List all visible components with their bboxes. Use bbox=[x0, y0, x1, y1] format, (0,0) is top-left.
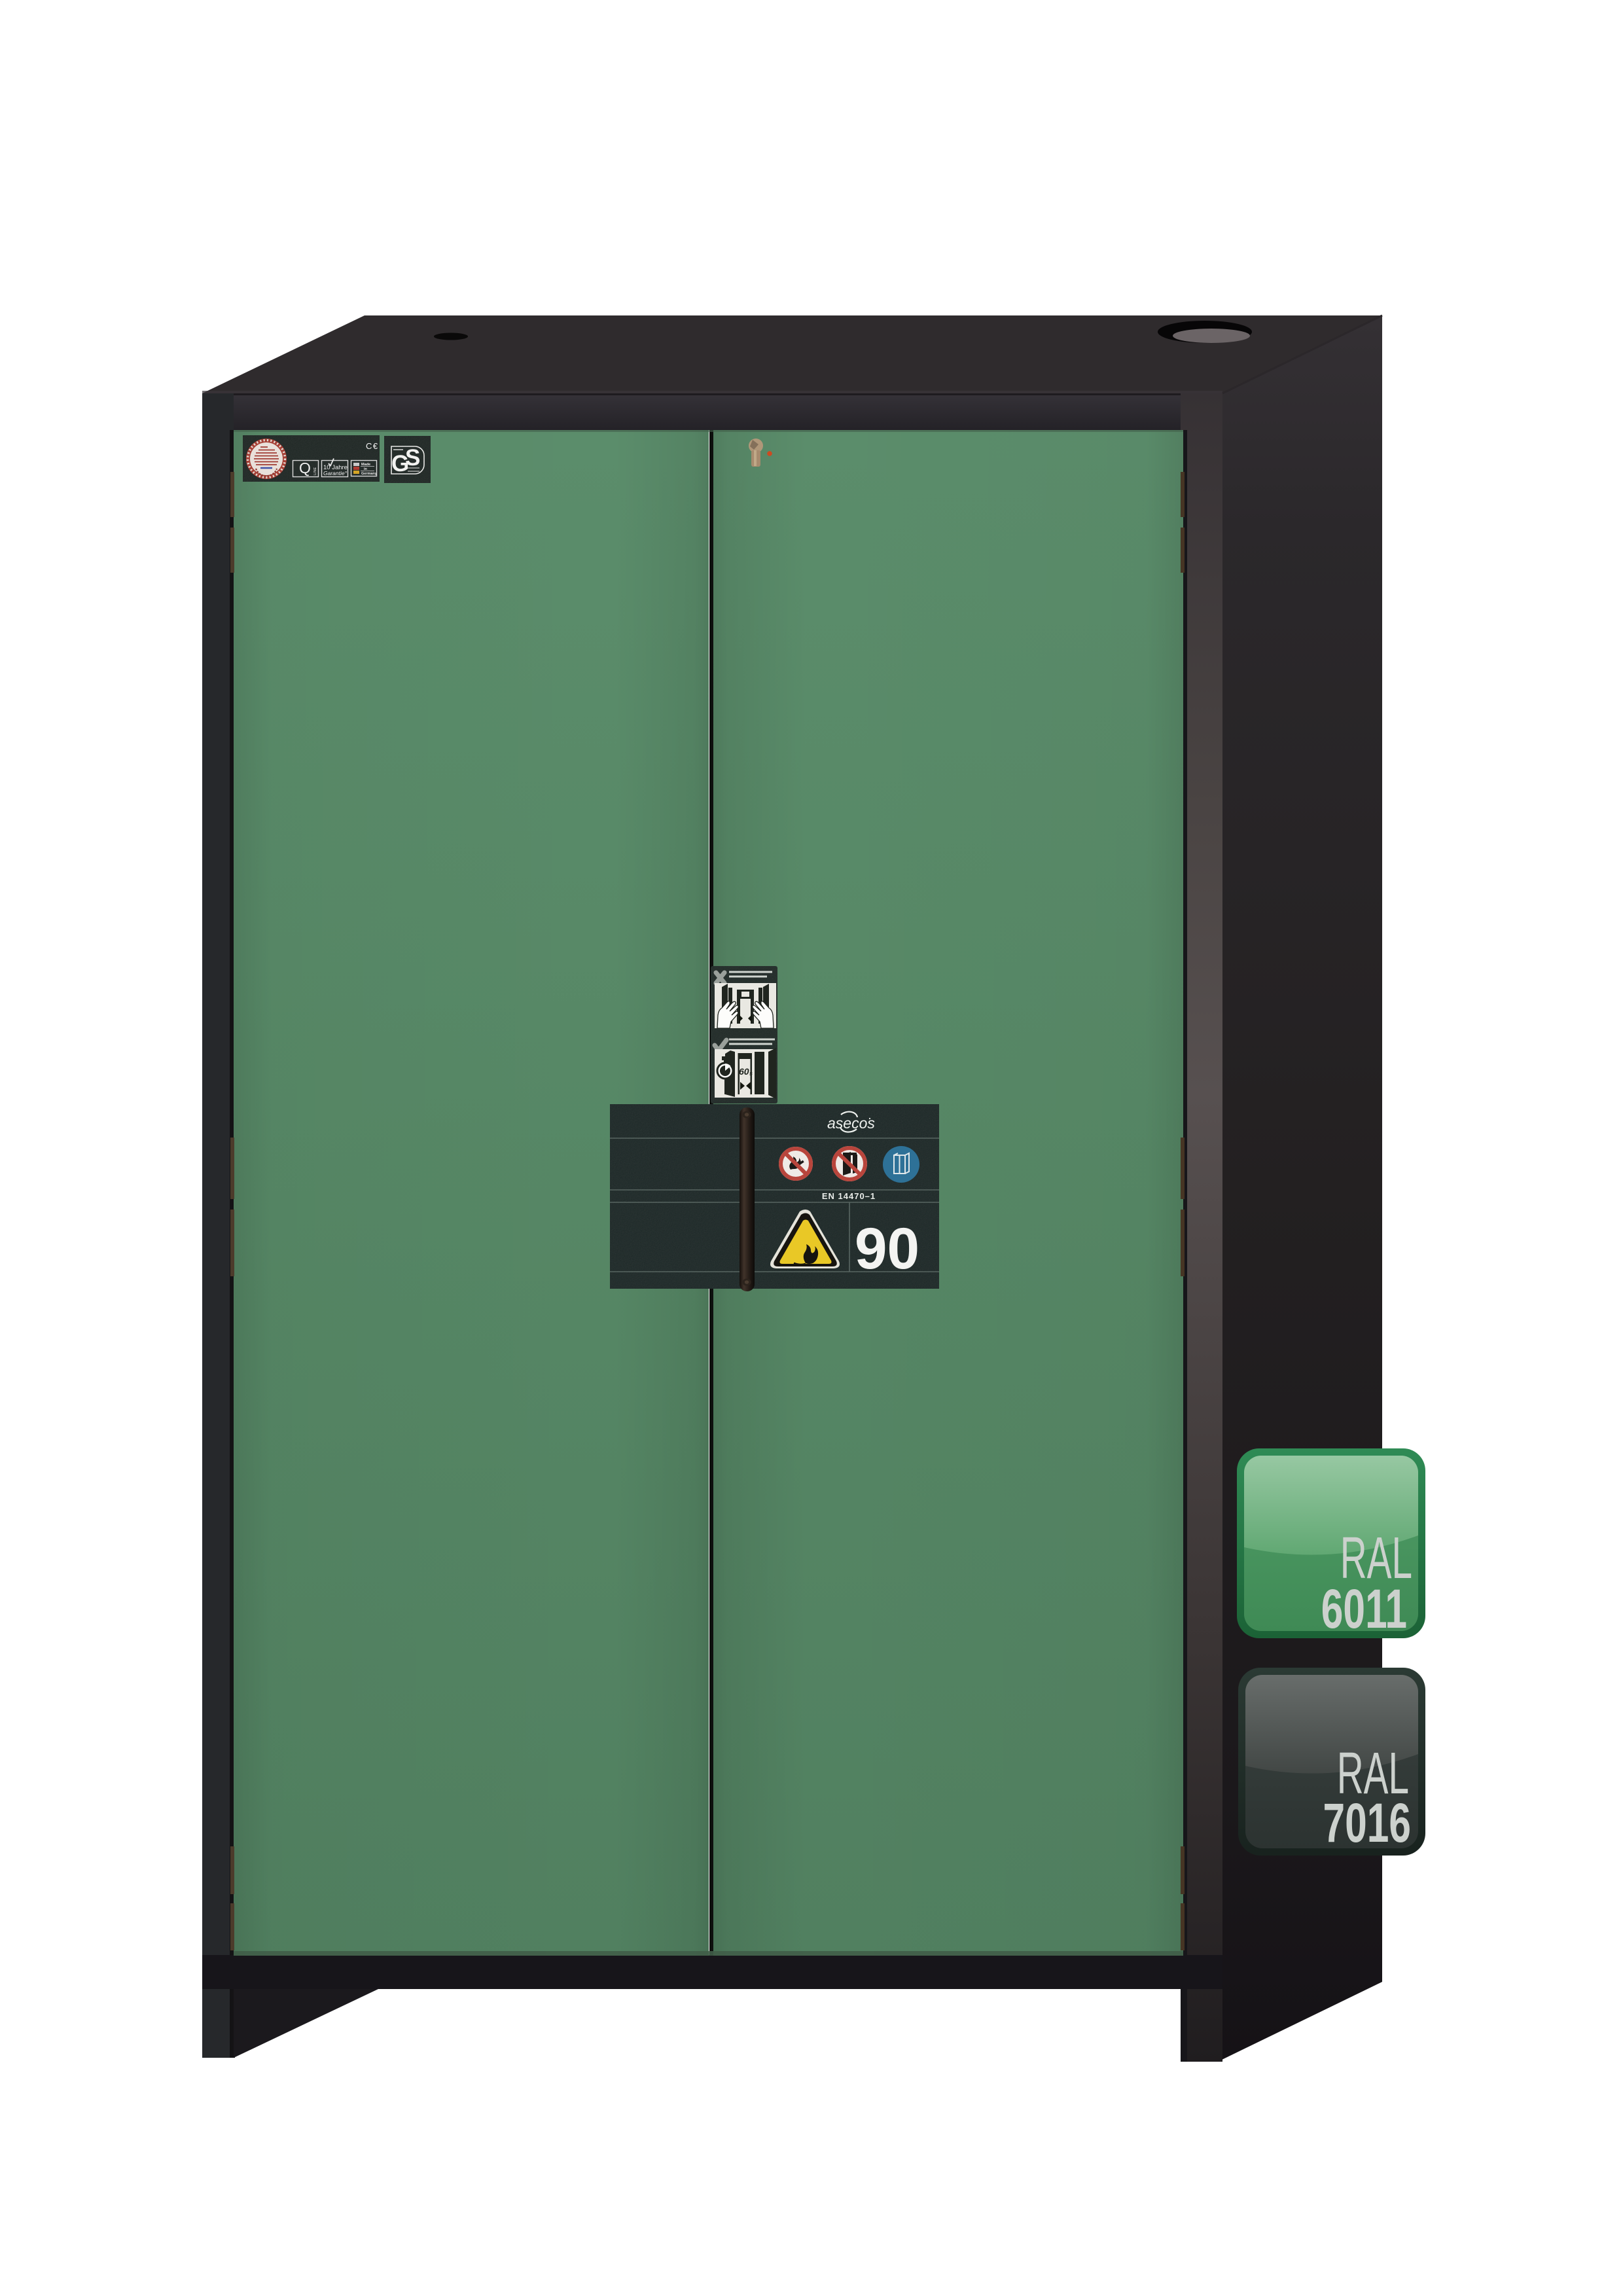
svg-text:EN 14470–1: EN 14470–1 bbox=[822, 1191, 876, 1201]
svg-text:asecos: asecos bbox=[827, 1115, 875, 1132]
svg-text:60: 60 bbox=[739, 1066, 749, 1077]
svg-text:C€: C€ bbox=[366, 441, 379, 451]
svg-text:7016: 7016 bbox=[1323, 1792, 1411, 1854]
svg-text:LINE: LINE bbox=[313, 467, 317, 475]
svg-text:6011: 6011 bbox=[1321, 1578, 1407, 1640]
svg-text:Germany: Germany bbox=[361, 472, 378, 476]
svg-text:Garantie°: Garantie° bbox=[323, 470, 348, 476]
svg-text:S: S bbox=[405, 445, 420, 471]
svg-text:Q: Q bbox=[299, 459, 311, 476]
svg-text:90: 90 bbox=[855, 1215, 919, 1281]
svg-text:s: s bbox=[749, 1070, 753, 1077]
